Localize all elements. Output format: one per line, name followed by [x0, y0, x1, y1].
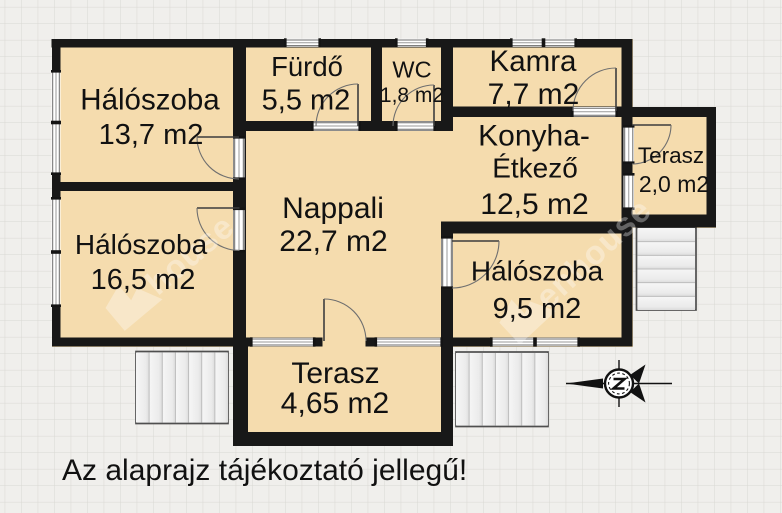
svg-text:Konyha-: Konyha-	[478, 120, 590, 153]
svg-text:1,8 m2: 1,8 m2	[380, 84, 444, 107]
svg-text:9,5 m2: 9,5 m2	[493, 293, 582, 325]
svg-text:2,0 m2: 2,0 m2	[639, 171, 709, 197]
svg-text:12,5 m2: 12,5 m2	[480, 188, 588, 221]
svg-text:Az alaprajz tájékoztató jelleg: Az alaprajz tájékoztató jellegű!	[62, 454, 467, 487]
svg-text:Hálószoba: Hálószoba	[80, 84, 220, 117]
svg-text:Fürdő: Fürdő	[271, 51, 343, 82]
svg-text:5,5 m2: 5,5 m2	[262, 85, 351, 117]
svg-text:Terasz: Terasz	[638, 143, 704, 168]
svg-text:16,5 m2: 16,5 m2	[91, 264, 196, 296]
svg-text:7,7 m2: 7,7 m2	[488, 78, 580, 111]
svg-text:Hálószoba: Hálószoba	[471, 256, 604, 287]
svg-text:Nappali: Nappali	[282, 192, 384, 225]
svg-text:Terasz: Terasz	[291, 357, 379, 390]
svg-text:13,7 m2: 13,7 m2	[99, 119, 204, 151]
svg-text:WC: WC	[392, 57, 431, 83]
svg-text:Kamra: Kamra	[490, 45, 577, 78]
svg-text:4,65 m2: 4,65 m2	[281, 387, 389, 420]
svg-text:22,7 m2: 22,7 m2	[279, 225, 387, 258]
svg-text:Étkező: Étkező	[492, 153, 578, 184]
svg-text:Hálószoba: Hálószoba	[75, 229, 208, 260]
